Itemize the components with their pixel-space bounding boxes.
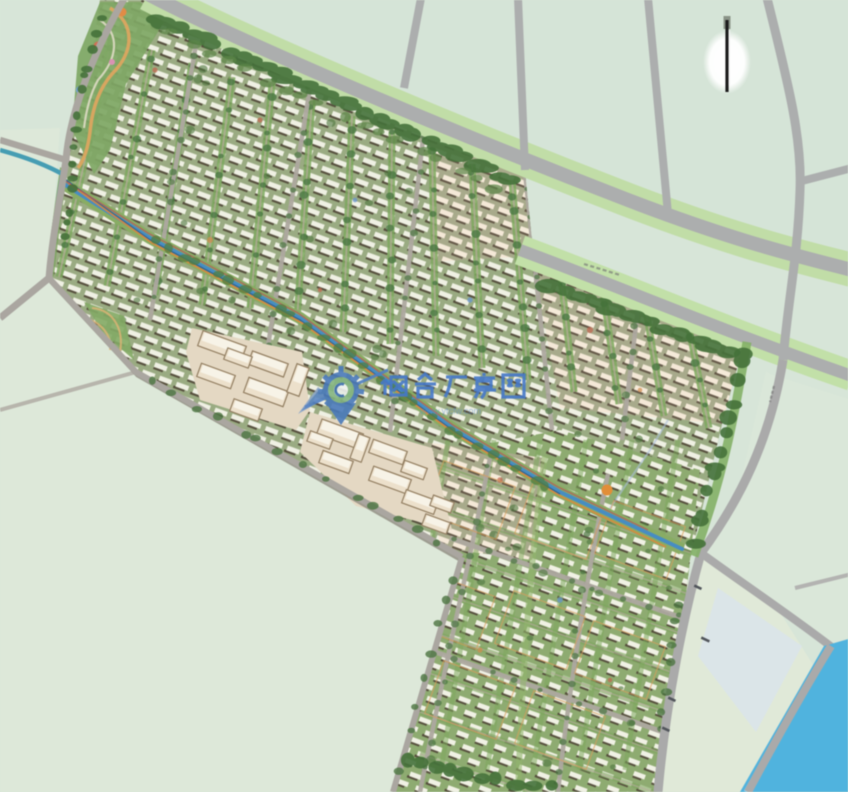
- svg-text:www.ytcfw.com: www.ytcfw.com: [419, 406, 481, 416]
